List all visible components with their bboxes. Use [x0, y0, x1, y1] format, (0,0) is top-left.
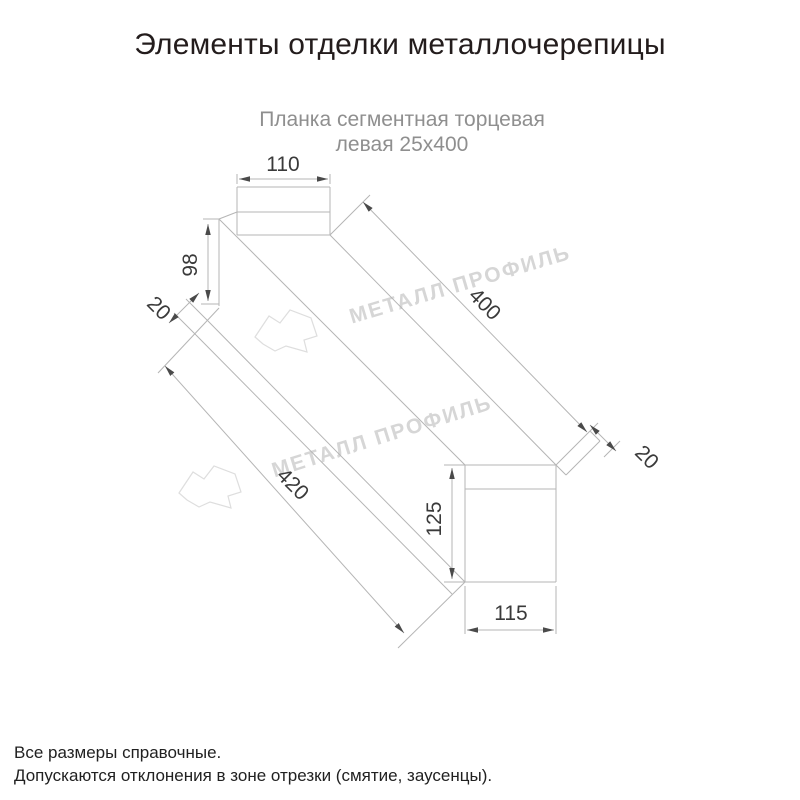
dim-125: 125	[423, 465, 465, 582]
watermark-upper: МЕТАЛЛ ПРОФИЛЬ	[255, 241, 574, 352]
watermark-text: МЕТАЛЛ ПРОФИЛЬ	[347, 241, 574, 328]
top-flat-outline	[219, 187, 330, 235]
dim-label-98: 98	[179, 253, 202, 276]
dim-420: 420	[165, 366, 404, 633]
footnote-line-2: Допускаются отклонения в зоне отрезки (с…	[14, 764, 492, 787]
technical-drawing: МЕТАЛЛ ПРОФИЛЬ МЕТАЛЛ ПРОФИЛЬ	[0, 0, 800, 800]
metal-profil-logo-icon	[179, 466, 241, 508]
watermark-lower: МЕТАЛЛ ПРОФИЛЬ	[179, 391, 495, 508]
dim-label-115: 115	[494, 602, 527, 625]
dim-20-right: 20	[590, 425, 663, 474]
dim-110: 110	[237, 153, 330, 184]
dim-label-20-left: 20	[142, 292, 175, 325]
watermark-text: МЕТАЛЛ ПРОФИЛЬ	[269, 391, 495, 482]
dim-115: 115	[465, 586, 556, 634]
metal-profil-logo-icon	[255, 310, 317, 352]
dim-label-125: 125	[423, 501, 446, 536]
footnote-line-1: Все размеры справочные.	[14, 741, 492, 764]
end-face-outline	[465, 423, 600, 582]
dim-98: 98	[179, 219, 219, 306]
dim-label-20-right: 20	[630, 441, 663, 474]
footnotes: Все размеры справочные. Допускаются откл…	[14, 741, 492, 787]
drawing-sheet: Элементы отделки металлочерепицы Планка …	[0, 0, 800, 800]
dim-20-left: 20	[142, 292, 208, 335]
dim-label-110: 110	[266, 153, 299, 176]
